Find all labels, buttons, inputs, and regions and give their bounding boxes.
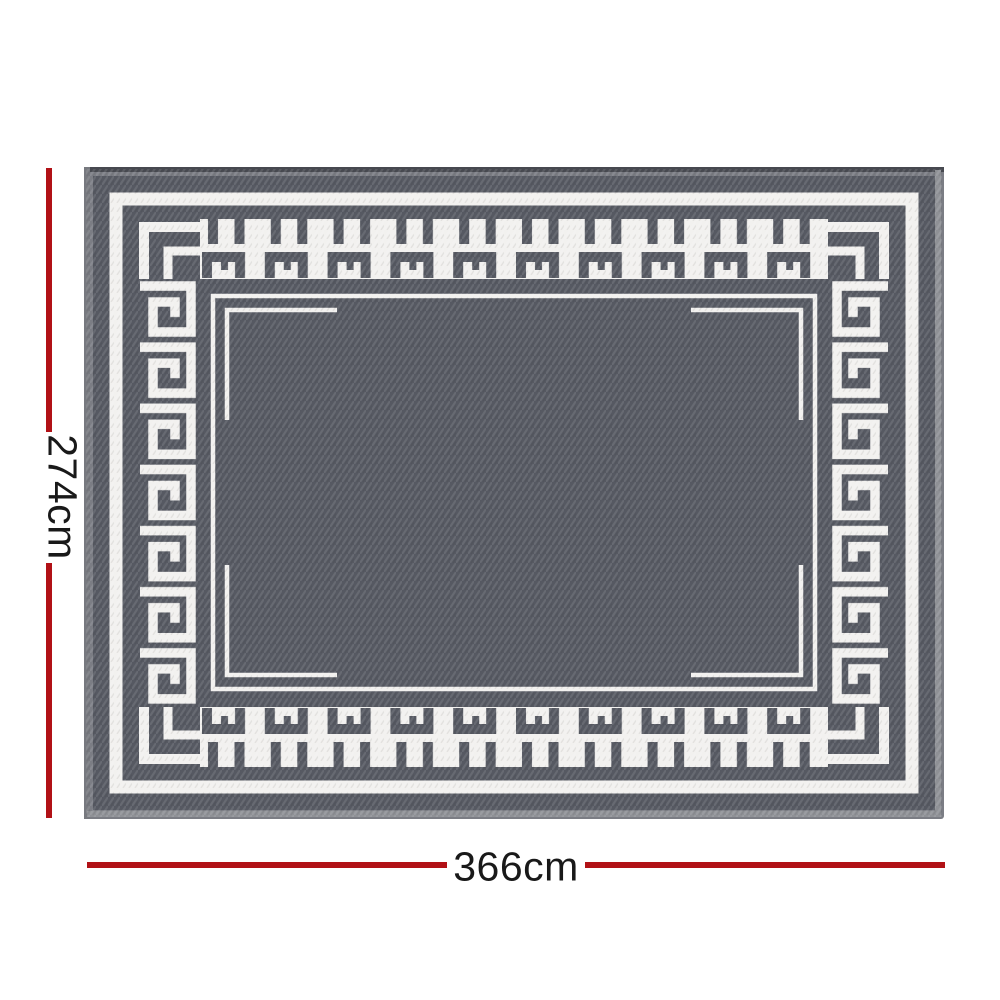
width-dimension-label: 366cm [453, 844, 579, 891]
width-dimension-line-right [585, 862, 945, 868]
weave-texture [86, 169, 942, 817]
height-dimension-line-top [46, 168, 52, 432]
height-dimension-line-bottom [46, 563, 52, 818]
product-figure: 274cm 366cm [0, 0, 1000, 1000]
width-dimension-line-left [87, 862, 447, 868]
height-dimension-label: 274cm [39, 434, 86, 560]
rug-image [84, 167, 944, 819]
